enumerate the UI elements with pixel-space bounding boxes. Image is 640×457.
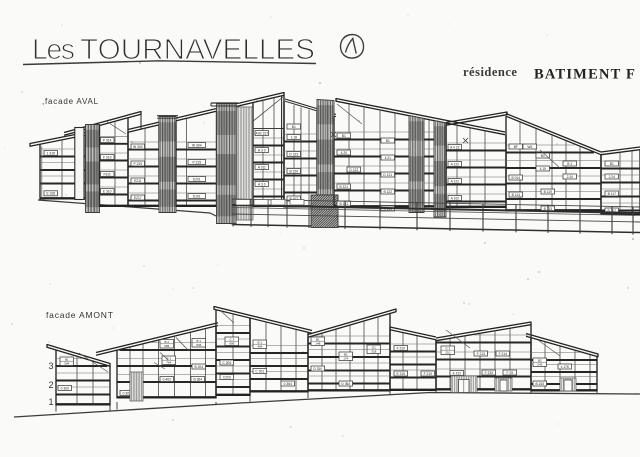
svg-text:686: 686 — [164, 344, 169, 348]
svg-text:0 300: 0 300 — [61, 386, 69, 390]
svg-text:F 233: F 233 — [485, 371, 494, 375]
svg-text:W4: W4 — [527, 145, 532, 149]
svg-text:764: 764 — [166, 361, 171, 365]
svg-text:4.20: 4.20 — [341, 151, 348, 155]
svg-text:F 25: F 25 — [506, 371, 513, 375]
svg-text:B 121: B 121 — [339, 185, 348, 189]
svg-text:210: 210 — [445, 351, 450, 355]
svg-text:A 122: A 122 — [451, 162, 460, 166]
svg-text:B 117: B 117 — [608, 192, 617, 196]
svg-text:B 243: B 243 — [535, 382, 544, 386]
svg-text:D 364: D 364 — [341, 382, 350, 386]
svg-text:F 210: F 210 — [424, 372, 433, 376]
svg-text:B1: B1 — [386, 139, 390, 143]
svg-text:699: 699 — [229, 342, 234, 346]
svg-text:E 210: E 210 — [396, 372, 405, 376]
svg-text:4.21: 4.21 — [385, 156, 392, 160]
svg-text:D 310: D 310 — [313, 367, 322, 371]
svg-text:c 176: c 176 — [561, 365, 569, 369]
svg-text:W 304: W 304 — [133, 145, 143, 149]
svg-text:A 311: A 311 — [258, 165, 266, 169]
svg-text:B 101: B 101 — [339, 202, 348, 206]
svg-text:A 4 22: A 4 22 — [450, 145, 460, 149]
svg-text:B 220: B 220 — [289, 169, 298, 173]
svg-text:,facade AVAL: ,facade AVAL — [42, 97, 99, 106]
svg-text:2: 2 — [49, 380, 54, 390]
svg-text:B 204: B 204 — [194, 365, 203, 369]
svg-text:0 364: 0 364 — [284, 382, 292, 386]
svg-text:P 314: P 314 — [103, 138, 112, 142]
svg-text:A Br 317: A Br 317 — [255, 131, 268, 135]
svg-text:F 313: F 313 — [103, 155, 112, 159]
svg-text:Les: Les — [32, 34, 75, 66]
svg-text:A 122: A 122 — [451, 179, 460, 183]
svg-text:C 201: C 201 — [255, 369, 264, 373]
svg-text:D 121: D 121 — [383, 173, 392, 177]
svg-text:A 102: A 102 — [451, 196, 460, 200]
svg-text:E101: E101 — [193, 194, 201, 198]
svg-text:F 213: F 213 — [477, 352, 486, 356]
svg-text:606: 606 — [196, 343, 201, 347]
svg-text:P 219: P 219 — [193, 160, 202, 164]
svg-text:1.18: 1.18 — [291, 135, 298, 139]
svg-text:E 310: E 310 — [103, 189, 112, 193]
svg-text:facade AMONT: facade AMONT — [46, 310, 114, 320]
svg-text:BF: BF — [514, 145, 518, 149]
svg-text:B 1: B 1 — [567, 162, 572, 166]
svg-text:B1: B1 — [541, 154, 545, 158]
svg-text:0 402: 0 402 — [163, 377, 171, 381]
svg-text:& 212: & 212 — [452, 371, 461, 375]
svg-text:B1: B1 — [292, 125, 296, 129]
svg-text:D 122: D 122 — [349, 168, 358, 172]
svg-text:318: 318 — [371, 350, 376, 354]
svg-text:2.24: 2.24 — [567, 175, 574, 179]
svg-text:W 304: W 304 — [192, 143, 202, 147]
svg-text:2.24: 2.24 — [609, 175, 616, 179]
svg-text:E201: E201 — [193, 177, 201, 181]
svg-text:B1: B1 — [610, 162, 614, 166]
svg-text:E211: E211 — [134, 179, 142, 183]
svg-text:C203: C203 — [223, 375, 231, 379]
svg-text:F 214: F 214 — [499, 352, 508, 356]
svg-text:3: 3 — [49, 361, 54, 371]
svg-text:résidence: résidence — [463, 65, 517, 79]
svg-text:B1: B1 — [342, 134, 346, 138]
svg-text:1 316: 1 316 — [47, 151, 55, 155]
svg-text:P 219: P 219 — [134, 162, 143, 166]
svg-text:4.15: 4.15 — [540, 167, 547, 171]
svg-text:B 364: B 364 — [193, 377, 202, 381]
svg-text:F 210: F 210 — [397, 346, 406, 350]
svg-text:E 318: E 318 — [46, 192, 55, 196]
svg-text:A 3 0: A 3 0 — [258, 182, 266, 186]
svg-text:A 3 0: A 3 0 — [258, 148, 266, 152]
svg-text:243: 243 — [537, 363, 542, 367]
svg-text:D 223: D 223 — [289, 152, 298, 156]
svg-text:174: 174 — [343, 357, 348, 361]
svg-text:F311: F311 — [104, 172, 111, 176]
svg-text:B 122: B 122 — [383, 190, 392, 194]
svg-text:C 204: C 204 — [222, 361, 231, 365]
svg-text:B 114: B 114 — [512, 193, 521, 197]
svg-text:304: 304 — [64, 362, 69, 366]
svg-text:BATIMENT F: BATIMENT F — [534, 67, 636, 83]
svg-text:1: 1 — [49, 397, 54, 407]
svg-text:E217: E217 — [134, 196, 142, 200]
svg-text:B 014: B 014 — [511, 176, 520, 180]
svg-text:B 119: B 119 — [544, 190, 553, 194]
svg-text:148: 148 — [315, 342, 320, 346]
svg-text:404: 404 — [257, 345, 262, 349]
